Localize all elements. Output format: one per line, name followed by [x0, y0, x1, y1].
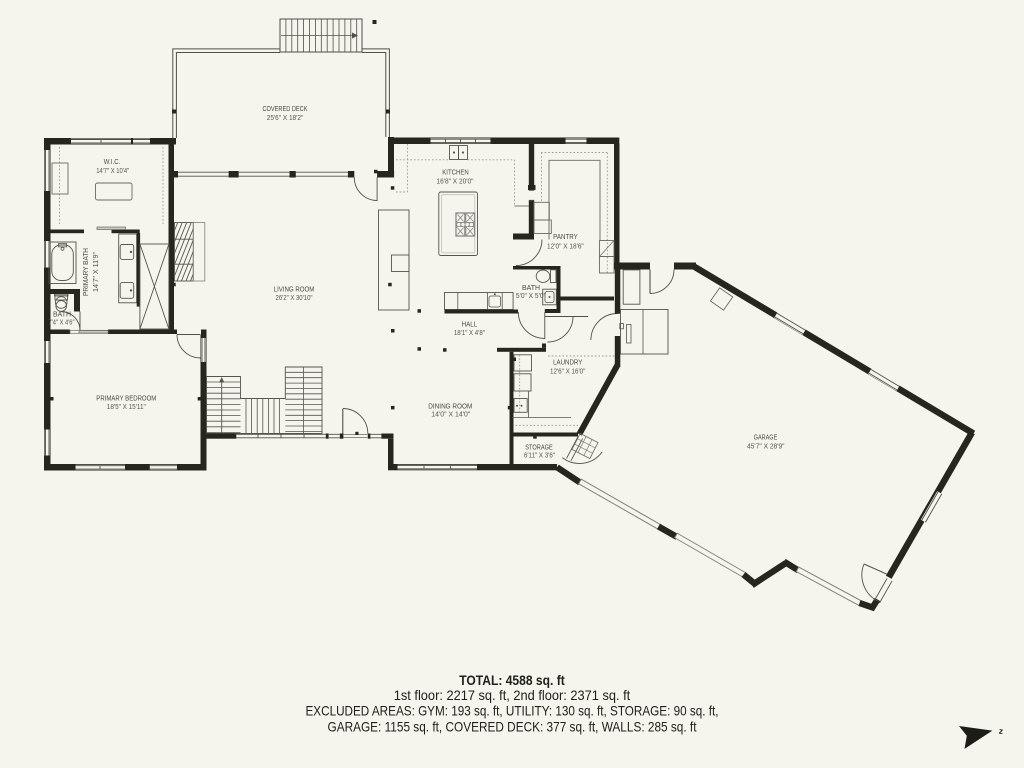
svg-text:W.I.C.: W.I.C.	[104, 157, 121, 166]
svg-text:45'7" X 28'9": 45'7" X 28'9"	[747, 444, 785, 451]
svg-text:PRIMARY BEDROOM: PRIMARY BEDROOM	[96, 394, 156, 403]
svg-text:1st floor: 2217 sq. ft, 2nd fl: 1st floor: 2217 sq. ft, 2nd floor: 2371 …	[394, 687, 631, 703]
svg-text:5'0" X 5'0": 5'0" X 5'0"	[516, 293, 547, 300]
svg-text:BATH: BATH	[53, 310, 71, 319]
svg-text:14'7" X 10'4": 14'7" X 10'4"	[96, 168, 129, 175]
svg-text:12'6" X 16'0": 12'6" X 16'0"	[550, 369, 586, 376]
svg-text:GARAGE: 1155 sq. ft, COVERED D: GARAGE: 1155 sq. ft, COVERED DECK: 377 s…	[328, 719, 697, 735]
svg-text:7'4" X 4'6": 7'4" X 4'6"	[49, 320, 75, 327]
svg-text:BATH: BATH	[522, 283, 540, 292]
svg-text:LAUNDRY: LAUNDRY	[553, 358, 582, 367]
svg-text:14'7" X 11'9": 14'7" X 11'9"	[93, 251, 100, 292]
svg-text:KITCHEN: KITCHEN	[442, 168, 469, 177]
svg-text:14'0" X 14'0": 14'0" X 14'0"	[431, 412, 471, 419]
svg-text:PRIMARY BATH: PRIMARY BATH	[81, 248, 90, 296]
svg-text:EXCLUDED AREAS: GYM: 193 sq. f: EXCLUDED AREAS: GYM: 193 sq. ft, UTILITY…	[306, 703, 719, 719]
svg-text:18'5" X 15'11": 18'5" X 15'11"	[107, 404, 147, 411]
svg-text:STORAGE: STORAGE	[525, 443, 553, 452]
svg-text:6'11" X 3'6": 6'11" X 3'6"	[524, 453, 555, 460]
svg-text:16'8" X 20'0": 16'8" X 20'0"	[437, 179, 475, 186]
svg-text:26'2" X 30'10": 26'2" X 30'10"	[276, 295, 313, 302]
svg-text:COVERED DECK: COVERED DECK	[263, 104, 308, 113]
svg-text:GARAGE: GARAGE	[754, 433, 778, 442]
svg-text:PANTRY: PANTRY	[553, 232, 578, 241]
svg-text:12'0" X 18'6": 12'0" X 18'6"	[547, 244, 584, 251]
svg-text:HALL: HALL	[462, 320, 478, 329]
svg-text:25'6" X 18'2": 25'6" X 18'2"	[267, 115, 304, 122]
svg-text:18'1" X 4'8": 18'1" X 4'8"	[454, 330, 485, 337]
svg-text:LIVING ROOM: LIVING ROOM	[274, 285, 315, 294]
svg-text:DINING ROOM: DINING ROOM	[428, 402, 472, 411]
